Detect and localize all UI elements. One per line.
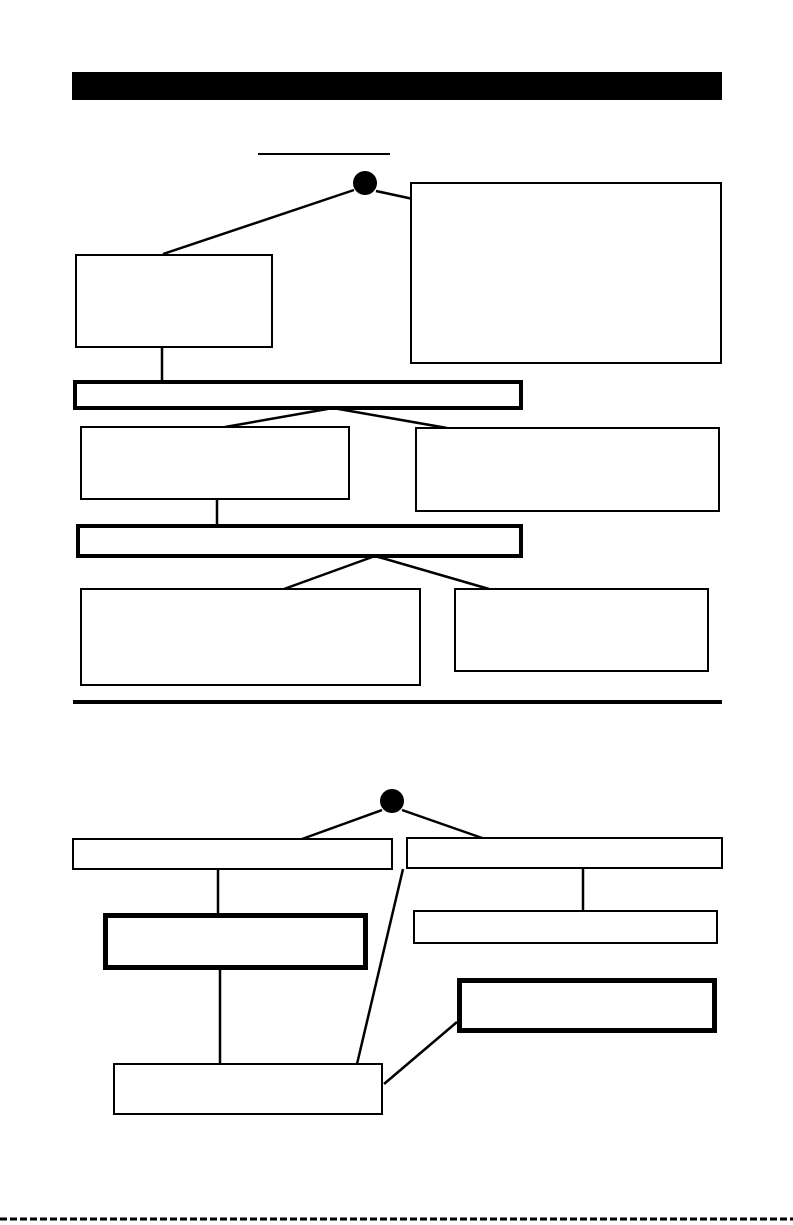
top-tree-diagram-root-node-circle: [353, 171, 377, 195]
d1-left-box: [75, 254, 273, 348]
d1-row3-right-box: [454, 588, 709, 672]
d2-bottom-box: [113, 1063, 383, 1115]
top-tree-diagram-connector-line: [376, 191, 413, 199]
d1-row2-right-box: [415, 427, 720, 512]
top-tree-diagram-connector-line: [375, 556, 489, 589]
bottom-tree-diagram-connector-line: [384, 1022, 457, 1084]
document-page: [0, 0, 793, 1225]
bottom-tree-diagram-connector-line: [302, 810, 382, 839]
d1-wide-bar-1: [73, 380, 523, 410]
top-tree-diagram-connector-line: [284, 556, 375, 589]
d1-wide-bar-2: [76, 524, 523, 558]
d1-right-large-box: [410, 182, 722, 364]
d1-row2-left-box: [80, 426, 350, 500]
d2-left-flat-box: [72, 838, 393, 870]
d2-right-sub-box: [413, 910, 718, 944]
d2-right-flat-box: [406, 837, 723, 869]
d1-row3-left-box: [80, 588, 421, 686]
header-bar: [72, 72, 722, 100]
section-divider-rule: [73, 700, 722, 704]
bottom-tree-diagram-connector-line: [402, 810, 485, 839]
d2-left-thick-box: [103, 913, 368, 970]
top-tree-diagram-connector-line: [163, 190, 354, 254]
bottom-tree-diagram-root-node-circle: [380, 789, 404, 813]
top-tree-diagram-connector-line: [333, 408, 447, 428]
d2-right-thick-box: [457, 978, 717, 1033]
top-tree-diagram-connector-line: [225, 408, 333, 427]
